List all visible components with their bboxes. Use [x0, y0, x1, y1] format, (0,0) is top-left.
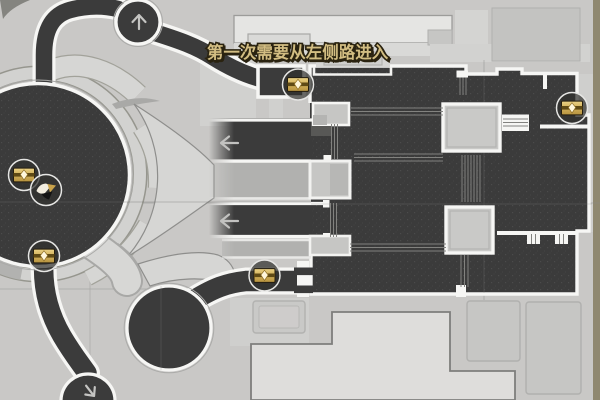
- svg-text:第一次需要从左侧路进入: 第一次需要从左侧路进入: [207, 43, 389, 62]
